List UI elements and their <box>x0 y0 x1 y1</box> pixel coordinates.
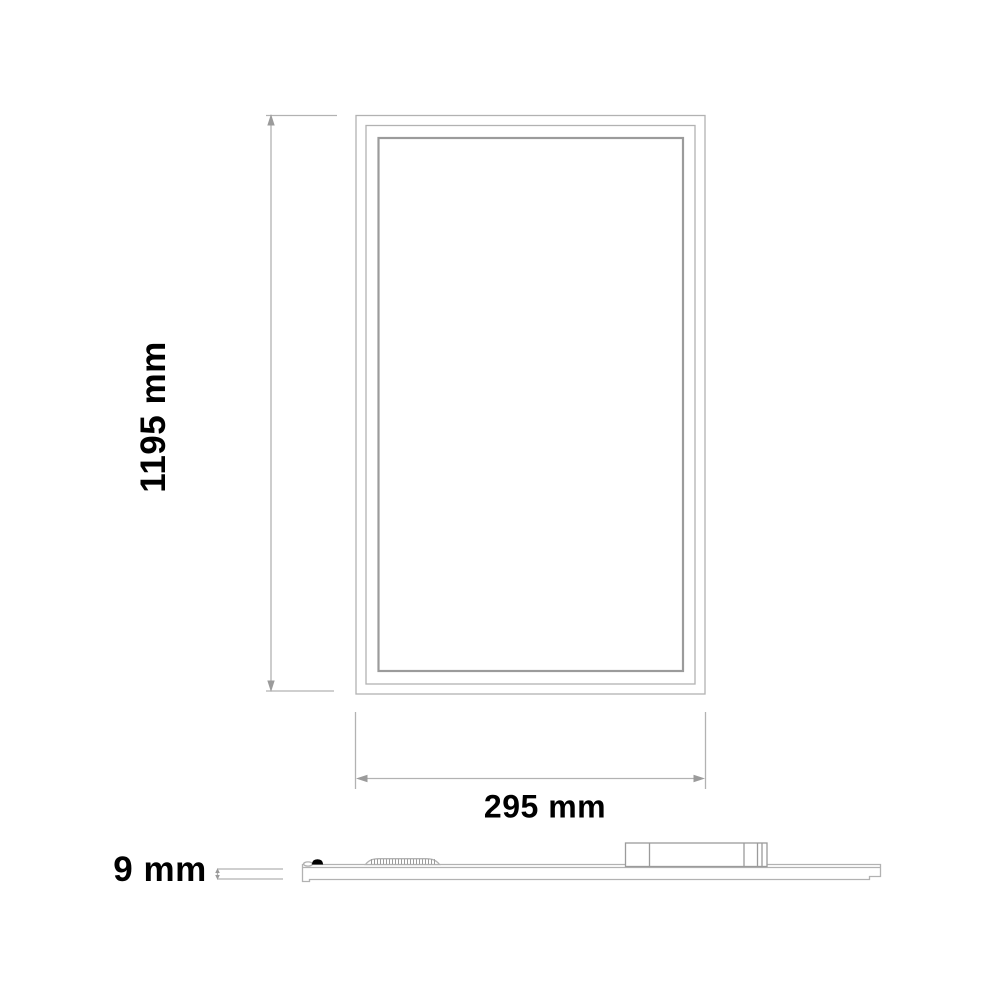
height-dimension-label: 1195 mm <box>134 341 174 492</box>
thickness-dimension <box>215 868 283 879</box>
driver-box <box>626 843 768 867</box>
arrow-down-icon <box>267 681 274 693</box>
panel-outer-frame <box>356 116 705 695</box>
thickness-reference-lines <box>217 869 283 879</box>
panel-side-view <box>303 843 881 882</box>
width-dimension-label: 295 mm <box>484 789 606 826</box>
clip-dot <box>312 859 323 864</box>
height-dimension <box>266 114 337 692</box>
thickness-dimension-label: 9 mm <box>113 850 206 890</box>
end-cap-oval <box>304 862 313 866</box>
panel-front-view <box>356 116 705 695</box>
panel-inner-frame <box>379 138 684 671</box>
panel-middle-frame <box>366 126 695 685</box>
dimension-drawing-page: 1195 mm 295 mm 9 mm <box>0 0 1000 1000</box>
arrow-left-icon <box>356 775 368 783</box>
driver-box-body <box>626 843 768 867</box>
arrow-right-icon <box>694 775 706 783</box>
width-dimension <box>356 712 706 789</box>
